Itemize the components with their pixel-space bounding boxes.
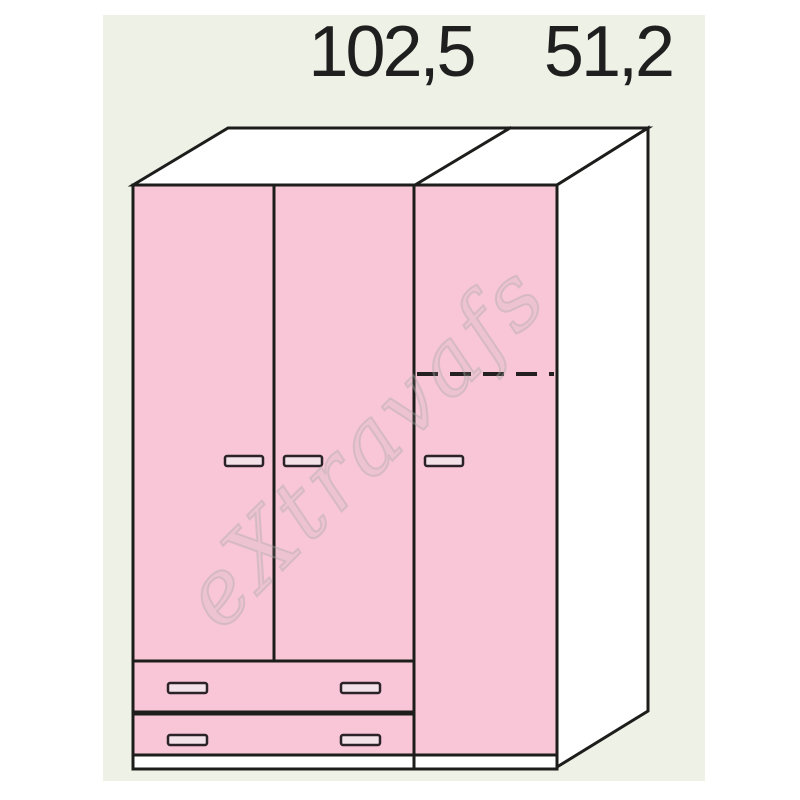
drawer-bottom-handle-right [341, 735, 380, 745]
wardrobe-line-drawing [103, 15, 705, 781]
drawer-top-handle-right [341, 683, 380, 693]
door-left-handle [225, 456, 263, 466]
door-middle [274, 185, 414, 661]
door-right [414, 185, 557, 755]
diagram-panel: 102,5 51,2 [103, 15, 705, 781]
door-left [133, 185, 274, 661]
drawer-top-handle-left [168, 683, 207, 693]
drawer-bottom-handle-left [168, 735, 207, 745]
door-right-handle [425, 456, 463, 466]
door-middle-handle [284, 456, 322, 466]
product-diagram-page: 102,5 51,2 [0, 0, 800, 800]
wardrobe-side-panel [557, 128, 648, 767]
